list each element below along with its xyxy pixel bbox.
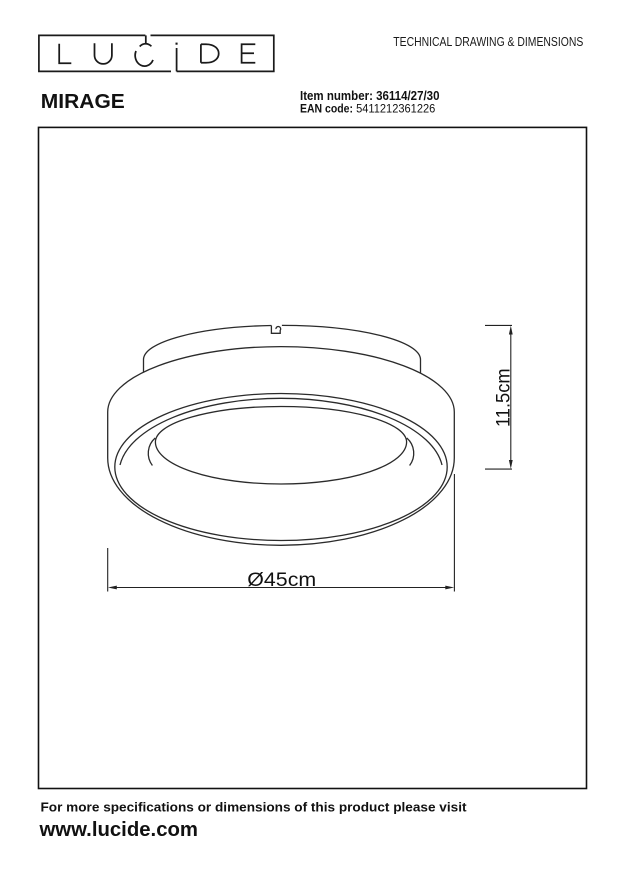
svg-text:For more specifications or dim: For more specifications or dimensions of… [41,799,468,814]
svg-text:www.lucide.com: www.lucide.com [38,819,198,841]
svg-text:5411212361226: 5411212361226 [356,101,435,115]
svg-text:Ø45cm: Ø45cm [247,570,316,591]
svg-text:MIRAGE: MIRAGE [41,90,125,113]
svg-text:EAN code:: EAN code: [300,101,353,115]
svg-text:TECHNICAL DRAWING & DIMENSIONS: TECHNICAL DRAWING & DIMENSIONS [393,35,583,49]
svg-text:11.5cm: 11.5cm [493,368,514,427]
